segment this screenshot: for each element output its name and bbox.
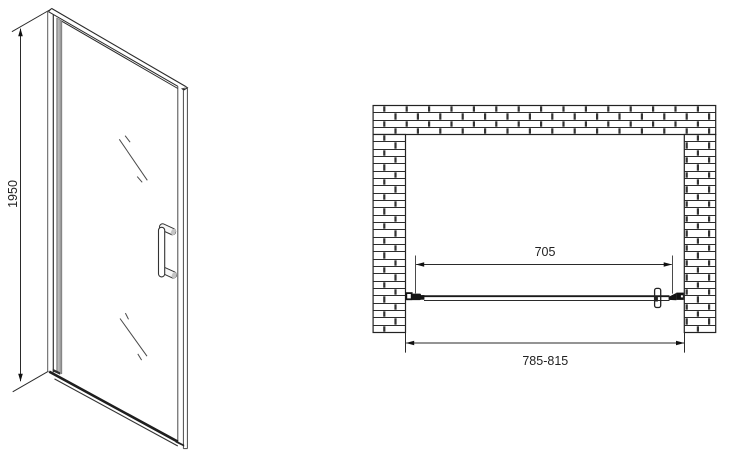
svg-text:785-815: 785-815 [522,354,568,368]
svg-text:1950: 1950 [6,180,20,208]
svg-text:705: 705 [535,245,556,259]
